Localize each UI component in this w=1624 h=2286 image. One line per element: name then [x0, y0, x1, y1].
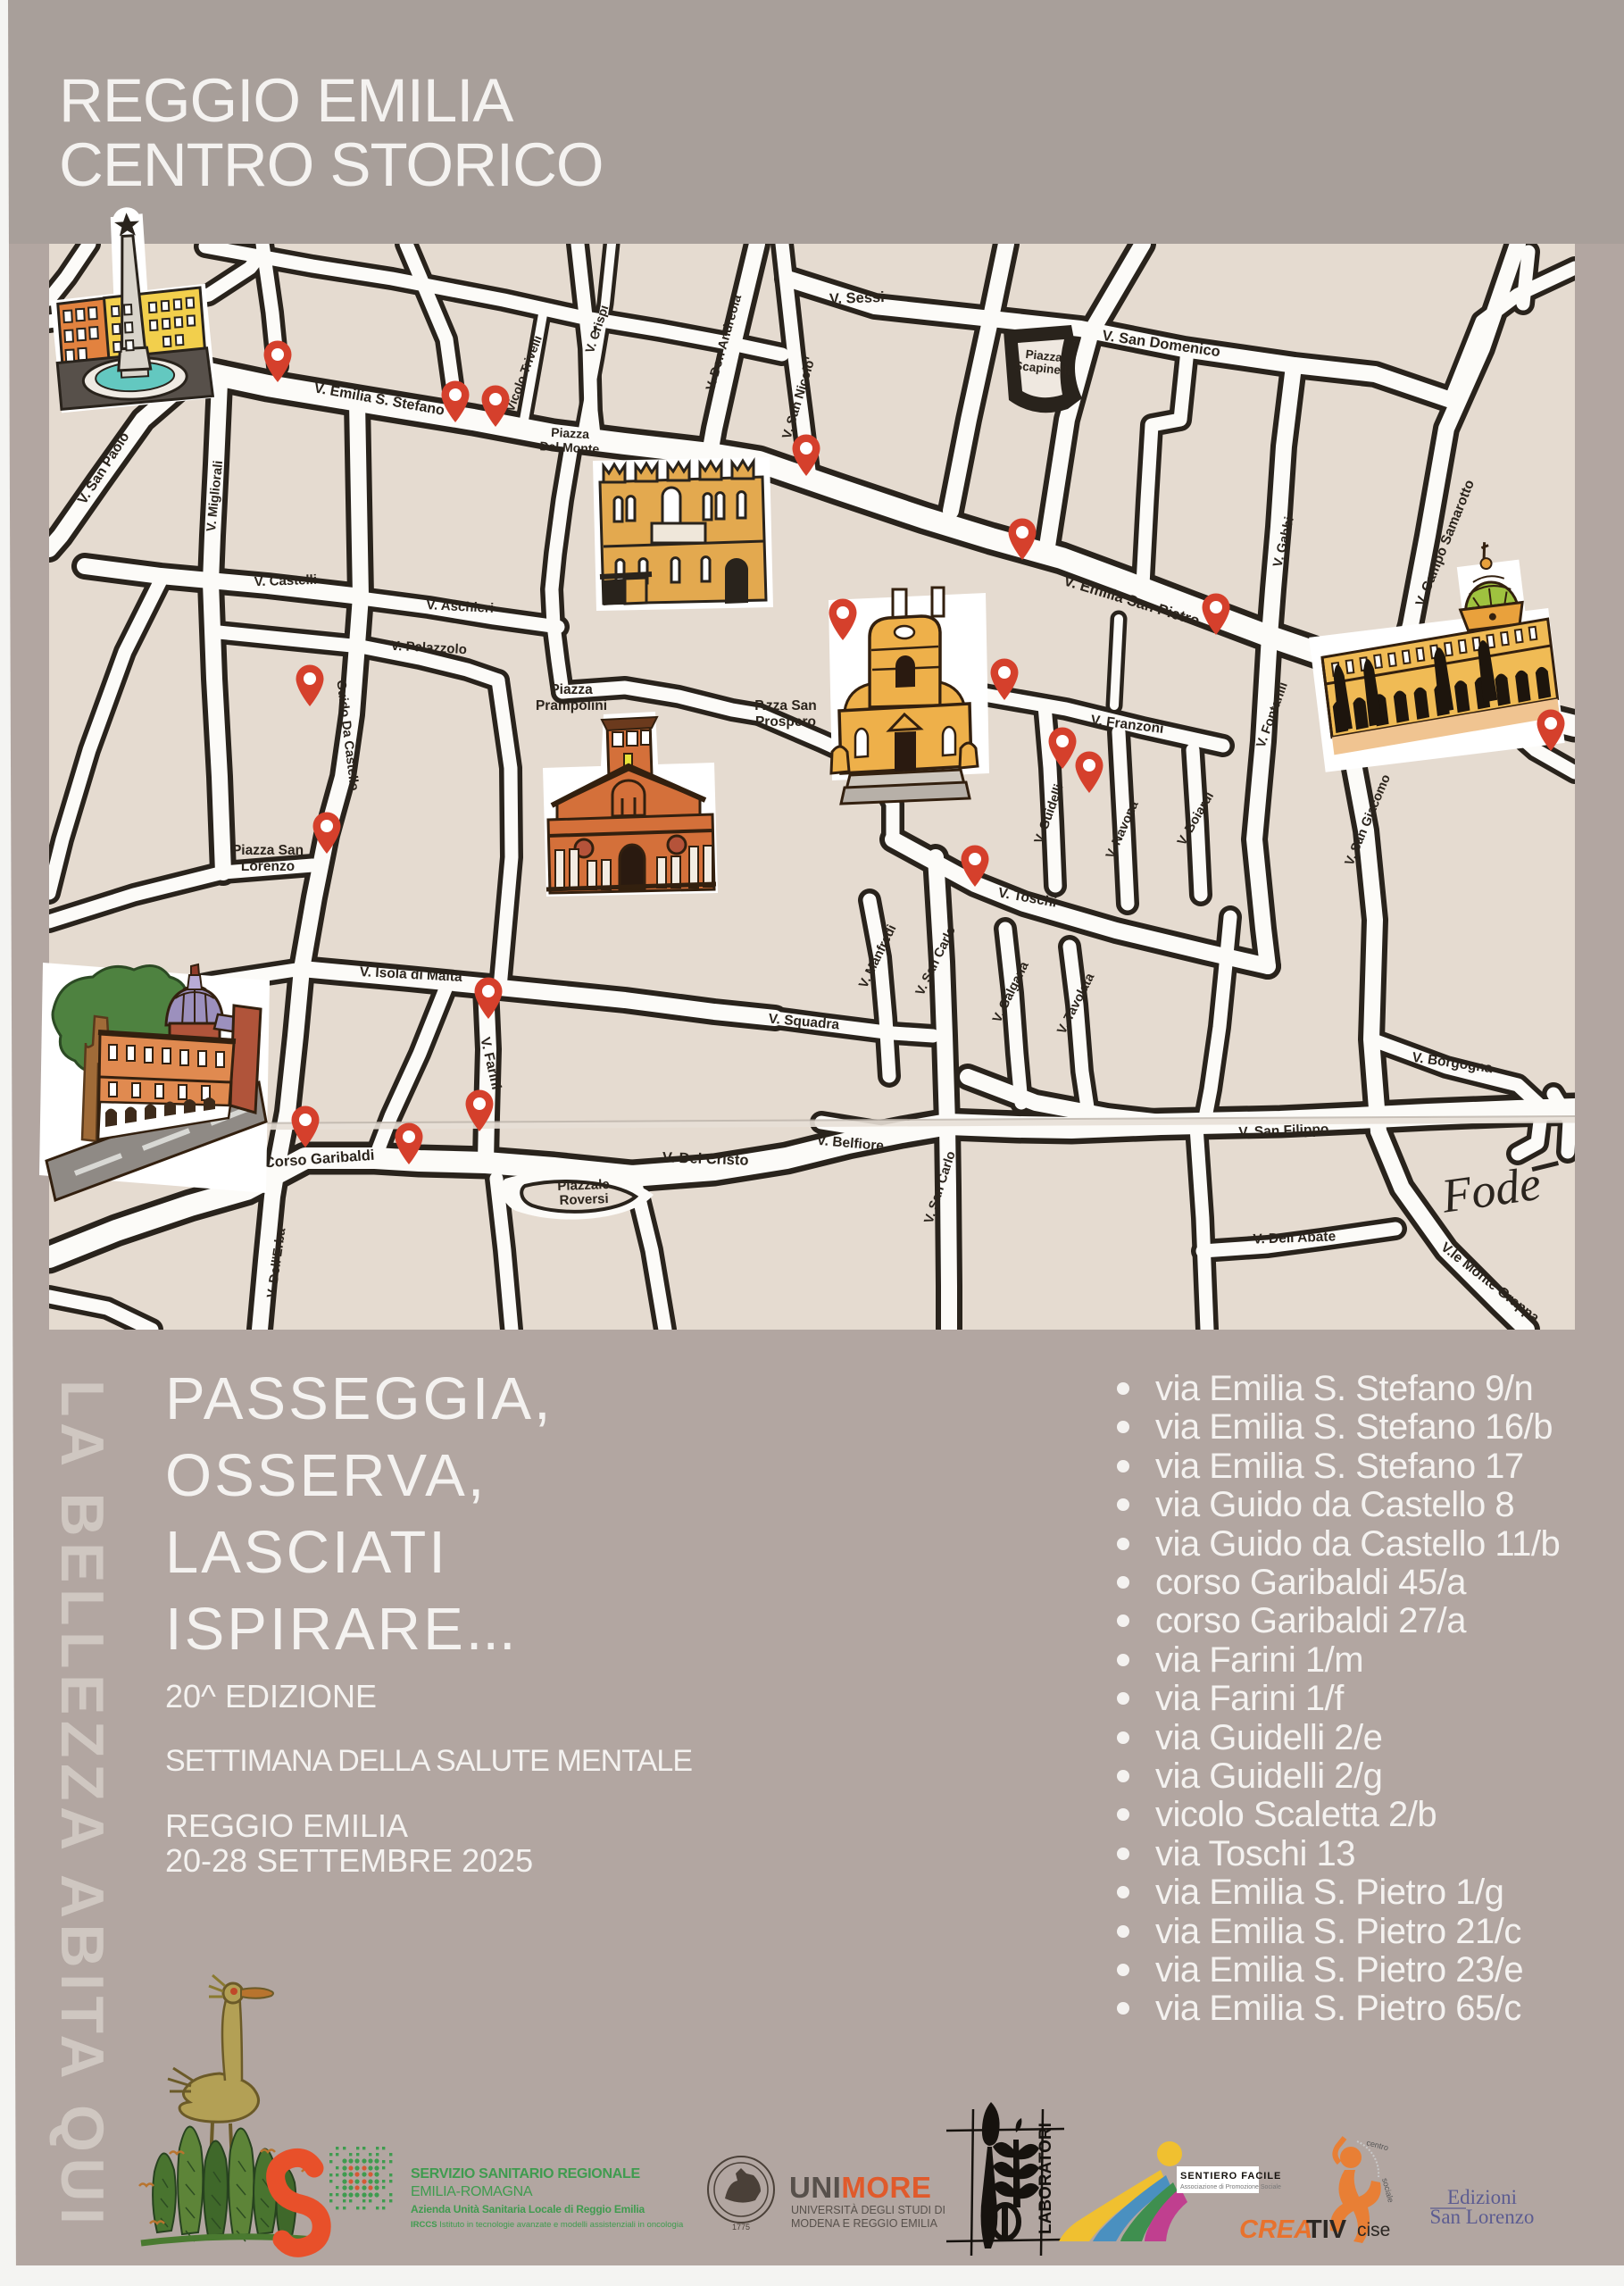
- svg-text:Roversi: Roversi: [559, 1191, 609, 1208]
- svg-text:Piazza San: Piazza San: [232, 843, 304, 858]
- svg-text:via Emilia S. Pietro 23/e: via Emilia S. Pietro 23/e: [1155, 1950, 1523, 1990]
- svg-text:via Guido da Castello 8: via Guido da Castello 8: [1155, 1485, 1514, 1524]
- svg-text:P.zza San: P.zza San: [754, 698, 817, 713]
- svg-text:CENTRO STORICO: CENTRO STORICO: [59, 130, 604, 199]
- svg-text:REGGIO EMILIA: REGGIO EMILIA: [59, 66, 513, 135]
- svg-text:LA BELLEZZA ABITA QUI: LA BELLEZZA ABITA QUI: [48, 1380, 116, 2230]
- svg-text:V. San Filippo: V. San Filippo: [1238, 1122, 1329, 1140]
- svg-text:via Emilia S. Pietro 21/c: via Emilia S. Pietro 21/c: [1155, 1912, 1521, 1951]
- svg-text:via Toschi 13: via Toschi 13: [1155, 1834, 1355, 1873]
- svg-text:REGGIO EMILIA: REGGIO EMILIA: [165, 1807, 408, 1844]
- svg-text:Prampolini: Prampolini: [536, 698, 607, 713]
- svg-text:via Farini 1/f: via Farini 1/f: [1155, 1679, 1345, 1718]
- svg-text:PASSEGGIA,: PASSEGGIA,: [165, 1365, 554, 1432]
- svg-text:EMILIA-ROMAGNA: EMILIA-ROMAGNA: [411, 2184, 533, 2199]
- svg-text:via Emilia S. Stefano 16/b: via Emilia S. Stefano 16/b: [1155, 1407, 1553, 1447]
- svg-text:Piazza: Piazza: [550, 682, 593, 697]
- svg-text:corso Garibaldi 45/a: corso Garibaldi 45/a: [1155, 1563, 1467, 1602]
- svg-text:Lorenzo: Lorenzo: [241, 859, 295, 874]
- svg-text:Prospero: Prospero: [755, 714, 816, 730]
- svg-text:Associazione di Promozione Soc: Associazione di Promozione Sociale: [1180, 2184, 1281, 2190]
- svg-text:IRCCS Istituto in tecnologie a: IRCCS Istituto in tecnologie avanzate e …: [411, 2220, 684, 2230]
- svg-text:V. Dell'Abate: V. Dell'Abate: [1253, 1229, 1337, 1247]
- svg-text:via Guidelli 2/e: via Guidelli 2/e: [1155, 1718, 1382, 1757]
- svg-text:via Emilia S. Stefano 17: via Emilia S. Stefano 17: [1155, 1447, 1524, 1486]
- svg-text:20-28 SETTEMBRE 2025: 20-28 SETTEMBRE 2025: [165, 1842, 533, 1879]
- svg-text:SENTIERO FACILE: SENTIERO FACILE: [1180, 2171, 1281, 2182]
- svg-text:CREA: CREA: [1239, 2215, 1312, 2244]
- svg-text:1775: 1775: [732, 2223, 750, 2232]
- svg-text:Azienda Unità Sanitaria Locale: Azienda Unità Sanitaria Locale di Reggio…: [411, 2203, 645, 2215]
- svg-text:SERVIZIO SANITARIO REGIONALE: SERVIZIO SANITARIO REGIONALE: [411, 2166, 640, 2182]
- svg-text:LASCIATI: LASCIATI: [165, 1519, 448, 1586]
- svg-text:via Guido da Castello 11/b: via Guido da Castello 11/b: [1155, 1524, 1560, 1564]
- svg-text:V. Sessi: V. Sessi: [829, 289, 885, 307]
- svg-text:SETTIMANA DELLA SALUTE MENTALE: SETTIMANA DELLA SALUTE MENTALE: [165, 1744, 692, 1778]
- svg-text:via Emilia S. Stefano 9/n: via Emilia S. Stefano 9/n: [1155, 1369, 1533, 1408]
- svg-text:via Farini 1/m: via Farini 1/m: [1155, 1640, 1363, 1680]
- svg-text:San Lorenzo: San Lorenzo: [1430, 2206, 1535, 2228]
- svg-text:UNIVERSITÀ DEGLI STUDI DI: UNIVERSITÀ DEGLI STUDI DI: [791, 2203, 945, 2216]
- svg-text:V. Del Cristo: V. Del Cristo: [662, 1149, 749, 1168]
- svg-text:corso Garibaldi 27/a: corso Garibaldi 27/a: [1155, 1601, 1467, 1640]
- svg-text:ISPIRARE...: ISPIRARE...: [165, 1596, 516, 1663]
- svg-text:UNIMORE: UNIMORE: [789, 2171, 931, 2204]
- svg-text:via Emilia S. Pietro 1/g: via Emilia S. Pietro 1/g: [1155, 1873, 1503, 1912]
- svg-text:LABORATORI: LABORATORI: [1037, 2123, 1055, 2234]
- svg-text:MODENA E REGGIO EMILIA: MODENA E REGGIO EMILIA: [791, 2217, 938, 2230]
- svg-text:20^ EDIZIONE: 20^ EDIZIONE: [165, 1678, 377, 1714]
- svg-text:via Emilia S. Pietro 65/c: via Emilia S. Pietro 65/c: [1155, 1989, 1521, 2028]
- svg-text:OSSERVA,: OSSERVA,: [165, 1442, 487, 1509]
- svg-text:cise: cise: [1357, 2220, 1390, 2240]
- svg-text:V. Castelli: V. Castelli: [254, 572, 317, 589]
- svg-text:via Guidelli 2/g: via Guidelli 2/g: [1155, 1756, 1382, 1796]
- svg-text:vicolo Scaletta 2/b: vicolo Scaletta 2/b: [1155, 1795, 1437, 1834]
- svg-text:TIV: TIV: [1306, 2215, 1347, 2244]
